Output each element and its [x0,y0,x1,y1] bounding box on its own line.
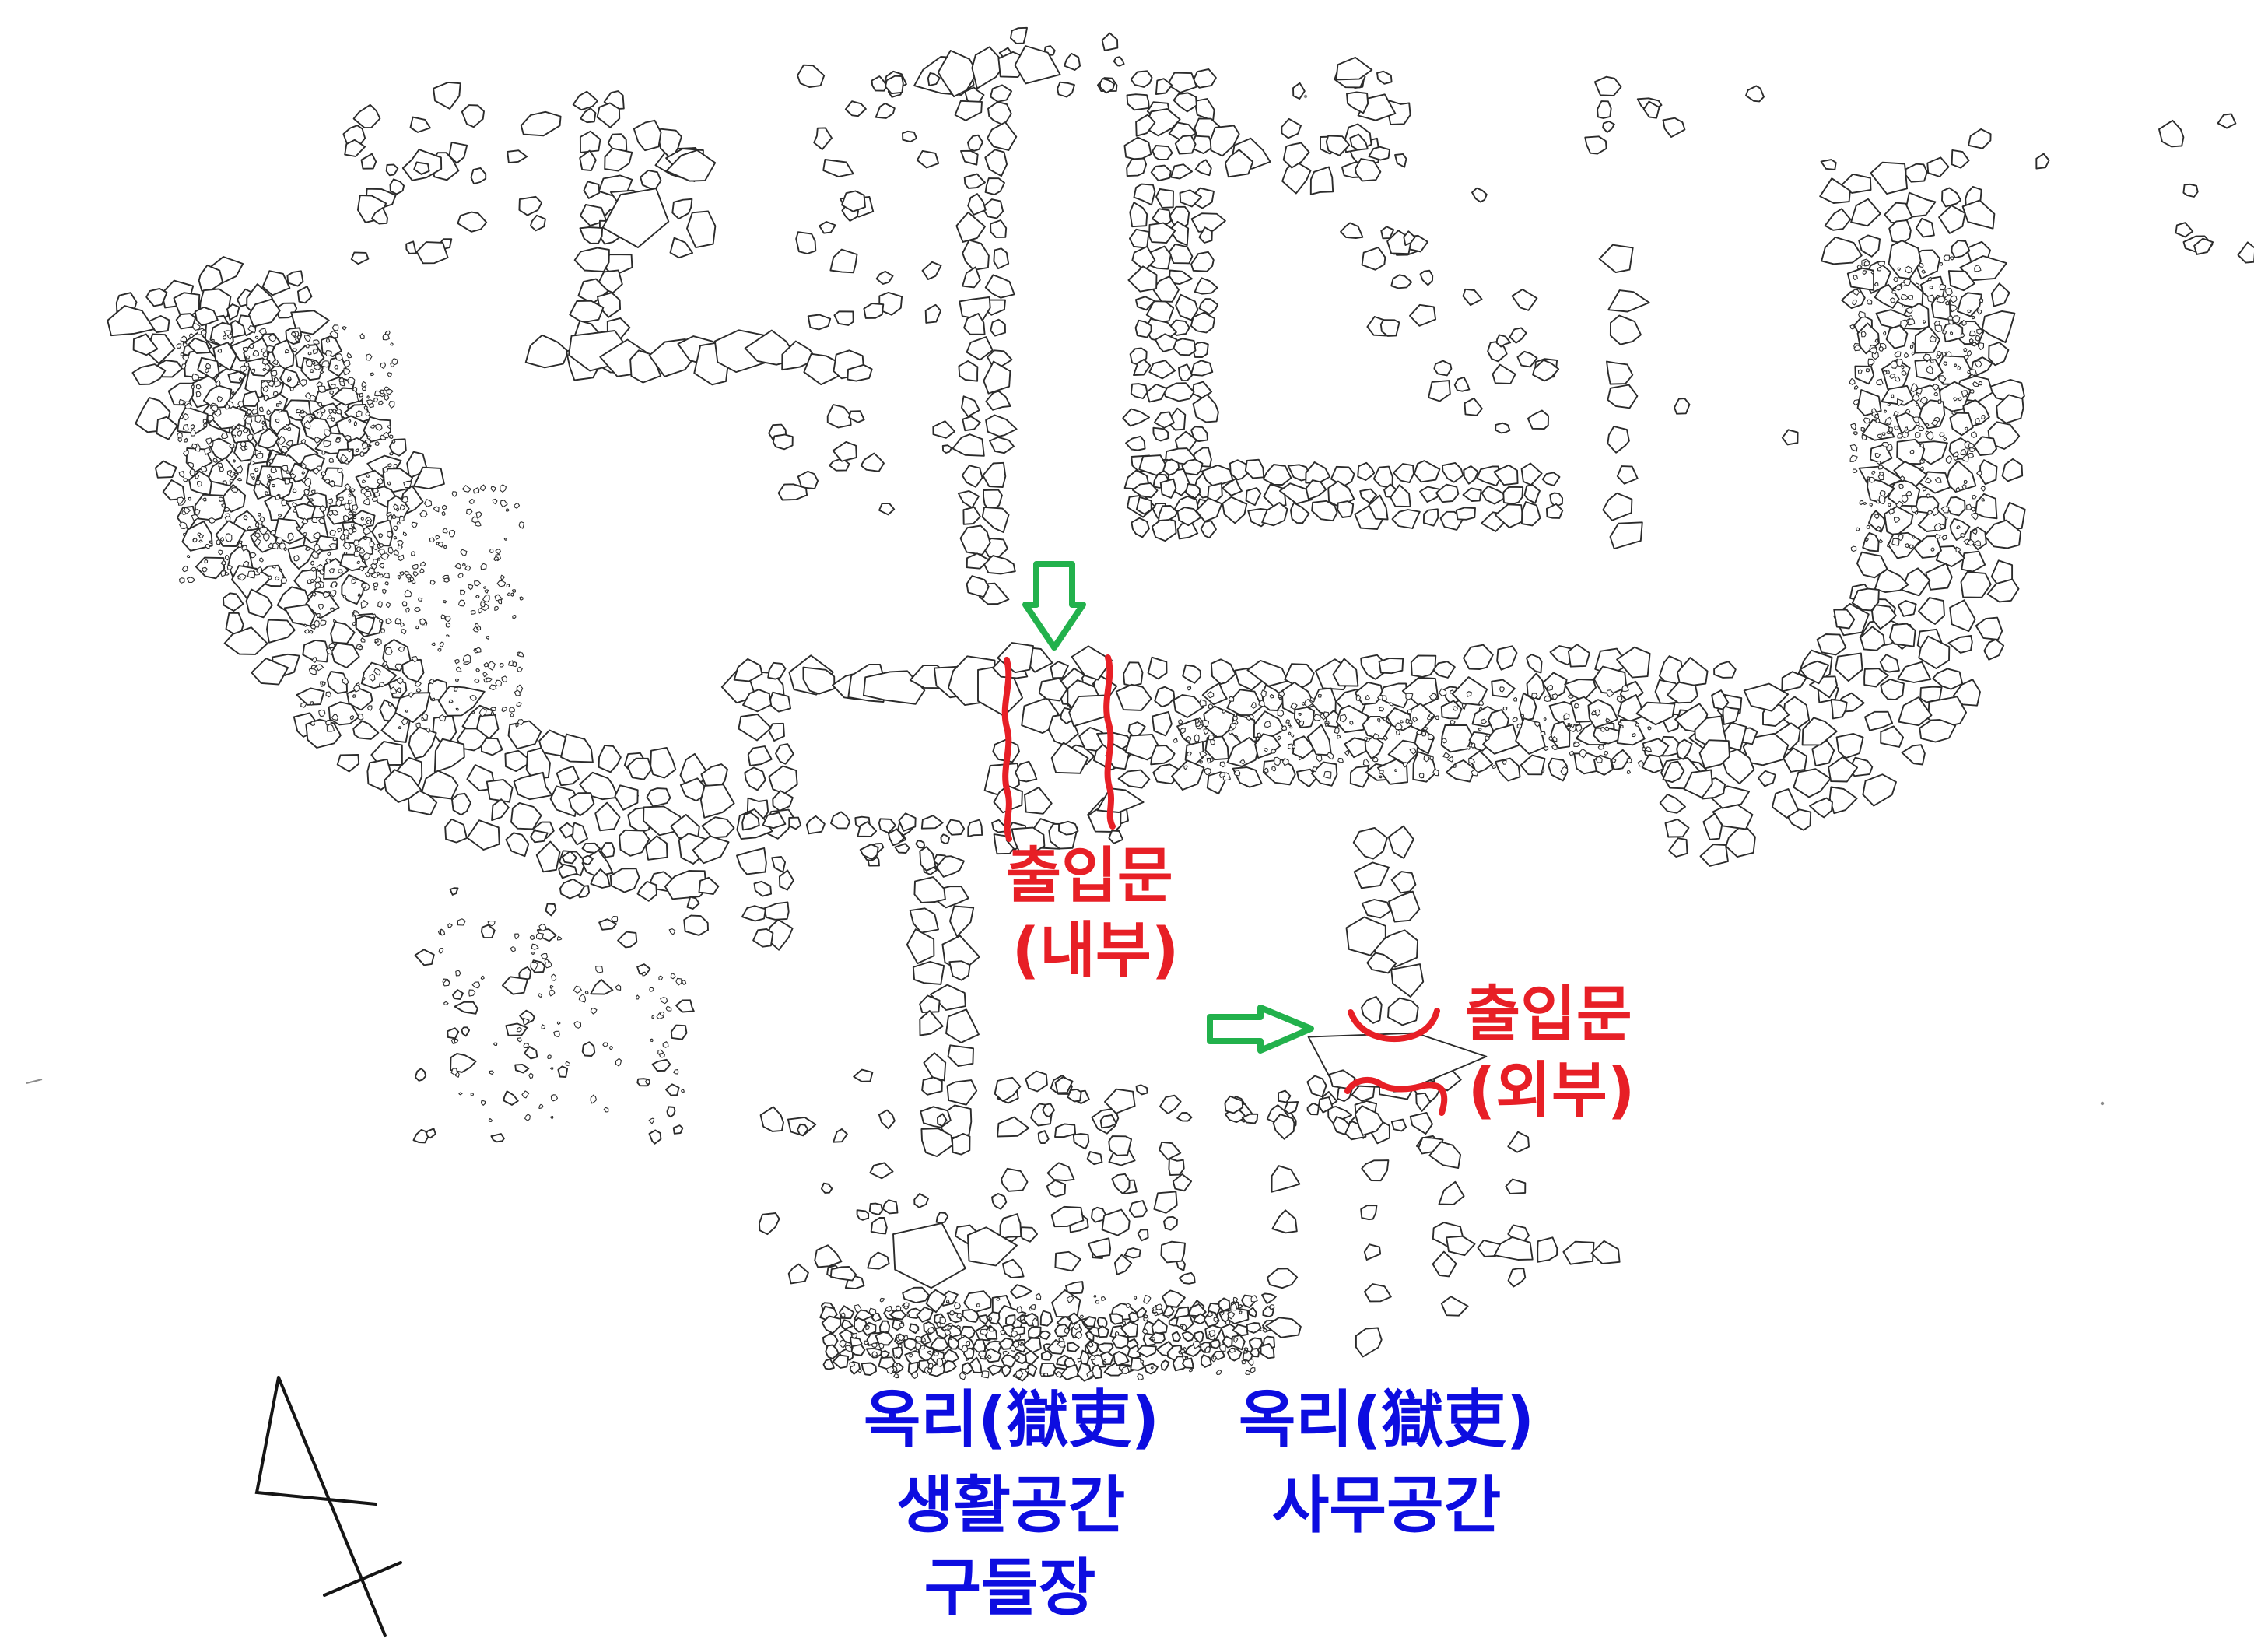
survey-tick-top [1304,95,1307,98]
label-living-space-line2: 생활공간 [896,1469,1125,1542]
down-arrow-icon [1025,564,1083,647]
main-wall-band [722,643,1736,950]
north-structure-mid [796,28,1123,604]
right-arrow-icon [1210,1008,1311,1050]
inner-gate-left-line [1005,660,1009,839]
excavation-plan-figure: 출입문 (내부) 출입문 (외부) 옥리(獄吏) 생활공간 구들장 옥리(獄吏)… [0,0,2254,1652]
label-office-space-line1: 옥리(獄吏) [1239,1384,1534,1456]
north-arrow-icon [257,1377,401,1636]
label-office-space-line2: 사무공간 [1272,1469,1501,1542]
label-living-space-line1: 옥리(獄吏) [864,1384,1159,1456]
north-structure-west [343,82,864,500]
far-corner-stones [2159,114,2254,262]
stone-drawing [107,28,2254,1381]
label-outer-gate-line1: 출입문 [1464,980,1632,1050]
survey-tick-right [2101,1102,2104,1105]
survey-tick-left [26,1079,42,1083]
label-inner-gate-line1: 출입문 [1005,841,1173,911]
northeast-structure [1123,58,1797,549]
gate-corridor-walls [907,847,980,1156]
label-living-space-line3: 구들장 [924,1552,1096,1624]
label-outer-gate-line2: (외부) [1468,1056,1635,1126]
north-arrow-lines [257,1377,401,1636]
label-inner-gate-line2: (내부) [1012,916,1180,986]
excavation-plan-canvas: 출입문 (내부) 출입문 (외부) 옥리(獄吏) 생활공간 구들장 옥리(獄吏)… [0,0,2254,1652]
